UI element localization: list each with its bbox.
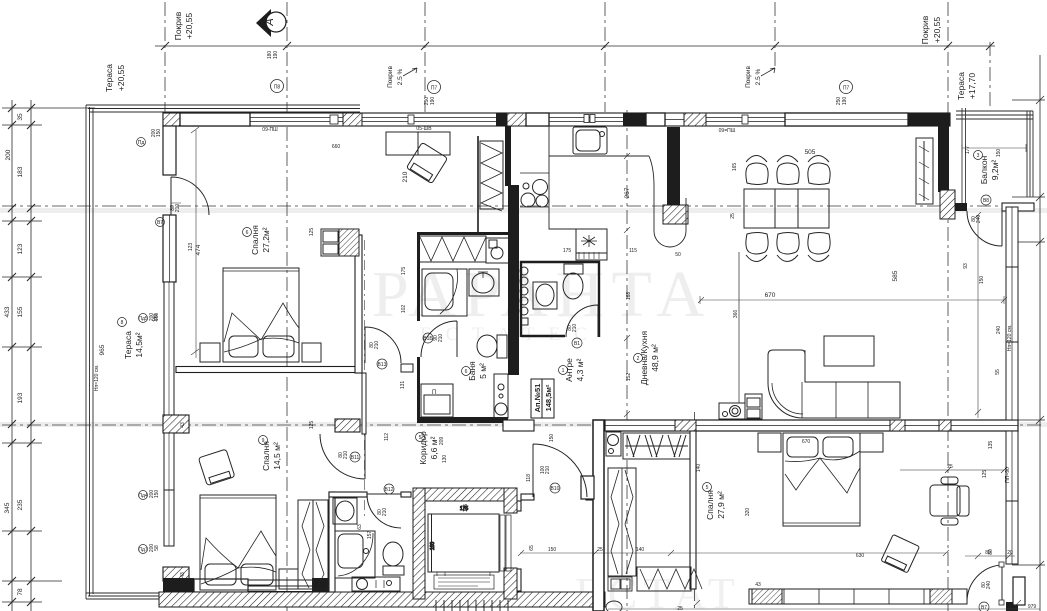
svg-text:210: 210 (572, 324, 578, 333)
svg-text:6,6 м²: 6,6 м² (429, 436, 439, 459)
svg-text:175: 175 (563, 248, 572, 254)
svg-text:190: 190 (430, 97, 436, 106)
svg-text:210: 210 (402, 171, 409, 182)
svg-text:Коридор: Коридор (418, 431, 428, 465)
svg-text:+20,55: +20,55 (184, 13, 194, 40)
svg-text:130: 130 (442, 455, 448, 464)
svg-text:5 м²: 5 м² (478, 363, 488, 379)
svg-text:43: 43 (755, 582, 761, 588)
svg-text:140: 140 (636, 547, 645, 553)
svg-text:Пд4: Пд4 (138, 493, 148, 499)
svg-text:Ап.№51: Ап.№51 (533, 384, 542, 413)
svg-text:+20,55: +20,55 (116, 65, 126, 92)
svg-text:25: 25 (597, 547, 603, 553)
svg-text:168: 168 (626, 292, 632, 301)
svg-text:177: 177 (965, 146, 971, 155)
svg-text:Антре: Антре (564, 358, 574, 382)
svg-text:20: 20 (1007, 550, 1013, 556)
svg-text:366: 366 (733, 310, 739, 319)
svg-text:П: П (432, 390, 436, 396)
svg-text:25: 25 (730, 213, 736, 219)
svg-text:200: 200 (5, 149, 12, 160)
svg-text:ПП=90: ПП=90 (1005, 467, 1011, 483)
svg-text:240: 240 (986, 581, 992, 590)
svg-text:65: 65 (529, 545, 535, 551)
svg-text:В10: В10 (551, 486, 560, 492)
svg-text:Покрив: Покрив (920, 15, 930, 44)
svg-text:180: 180 (430, 542, 436, 551)
svg-text:80: 80 (988, 549, 994, 555)
svg-text:Тераса: Тераса (956, 72, 966, 100)
svg-text:630: 630 (856, 553, 865, 559)
svg-text:14,5м²: 14,5м² (134, 332, 144, 357)
svg-text:63: 63 (357, 524, 363, 530)
svg-text:240: 240 (996, 326, 1002, 335)
svg-text:115: 115 (629, 248, 637, 254)
svg-text:148,5м²: 148,5м² (544, 384, 553, 411)
svg-text:2.5 %: 2.5 % (397, 68, 404, 85)
svg-text:157: 157 (367, 531, 373, 540)
svg-text:Нп=120 см.: Нп=120 см. (94, 365, 100, 391)
svg-text:660: 660 (332, 144, 341, 150)
svg-text:123: 123 (188, 243, 194, 252)
svg-text:25: 25 (677, 606, 683, 611)
svg-text:Покрив: Покрив (173, 11, 183, 40)
svg-text:27,9 м²: 27,9 м² (716, 491, 726, 519)
svg-text:190: 190 (273, 51, 279, 60)
svg-text:210: 210 (343, 451, 349, 460)
svg-text:210: 210 (545, 466, 551, 475)
svg-text:Нп=120 см.: Нп=120 см. (1007, 325, 1013, 351)
svg-text:150: 150 (996, 149, 1002, 158)
svg-text:670: 670 (765, 292, 776, 299)
svg-text:9,2м²: 9,2м² (990, 160, 1000, 181)
svg-text:Тераса: Тераса (123, 331, 133, 359)
svg-text:Балкон: Балкон (979, 155, 989, 184)
svg-text:Спалня: Спалня (250, 225, 260, 255)
svg-text:93: 93 (963, 263, 969, 269)
svg-text:Покрив: Покрив (745, 66, 752, 88)
svg-text:В7: В7 (981, 605, 987, 611)
svg-text:Тераса: Тераса (104, 64, 114, 92)
svg-text:210: 210 (438, 334, 444, 343)
svg-text:П7: П7 (431, 86, 438, 92)
svg-text:175: 175 (463, 504, 469, 513)
svg-text:118: 118 (526, 474, 532, 482)
svg-text:135: 135 (988, 441, 994, 450)
svg-text:152: 152 (626, 373, 632, 382)
svg-text:112: 112 (384, 433, 390, 441)
svg-text:320: 320 (745, 508, 751, 517)
svg-text:210: 210 (382, 508, 388, 517)
svg-text:48,9 м²: 48,9 м² (650, 344, 660, 372)
svg-text:Спалня: Спалня (705, 490, 715, 520)
svg-text:175: 175 (401, 267, 407, 276)
svg-text:05-ШВ: 05-ШВ (416, 126, 432, 132)
svg-text:150: 150 (154, 490, 160, 499)
svg-text:155: 155 (17, 306, 24, 317)
svg-text:965: 965 (99, 344, 106, 355)
svg-text:209: 209 (439, 437, 445, 446)
svg-text:505: 505 (805, 149, 816, 156)
svg-text:150: 150 (548, 547, 557, 553)
svg-text:14,5 м²: 14,5 м² (272, 442, 282, 470)
svg-text:50: 50 (675, 252, 681, 258)
svg-text:Пд7: Пд7 (138, 547, 148, 553)
svg-text:В1Б: В1Б (423, 336, 433, 342)
svg-text:5: 5 (706, 485, 709, 491)
svg-text:125: 125 (309, 421, 315, 430)
svg-text:27,2м²: 27,2м² (261, 227, 271, 252)
svg-text:123: 123 (17, 243, 24, 254)
svg-text:190: 190 (842, 97, 848, 106)
svg-text:6: 6 (246, 230, 249, 236)
svg-text:131: 131 (400, 381, 406, 390)
svg-text:165: 165 (732, 163, 738, 172)
svg-text:210: 210 (374, 341, 380, 350)
svg-text:А: А (264, 18, 276, 26)
svg-text:Спалня: Спалня (261, 441, 271, 471)
svg-text:4,3 м²: 4,3 м² (575, 358, 585, 381)
svg-text:2.5 %: 2.5 % (755, 68, 762, 85)
svg-text:240: 240 (976, 215, 982, 224)
svg-text:125: 125 (309, 228, 315, 237)
svg-text:43: 43 (180, 572, 186, 578)
svg-text:125: 125 (982, 470, 988, 479)
svg-text:09=ПШ: 09=ПШ (719, 128, 736, 134)
svg-text:150: 150 (156, 129, 162, 138)
svg-text:В11: В11 (351, 455, 360, 461)
svg-text:155: 155 (153, 314, 159, 323)
svg-text:55: 55 (995, 369, 1001, 375)
svg-text:35: 35 (17, 113, 24, 121)
svg-text:П8: П8 (274, 85, 281, 91)
svg-text:8: 8 (121, 320, 124, 326)
svg-text:78: 78 (17, 588, 24, 596)
svg-text:В1: В1 (574, 341, 580, 347)
svg-text:585: 585 (892, 270, 899, 281)
svg-text:09-ПШ: 09-ПШ (262, 127, 278, 133)
svg-text:140: 140 (696, 464, 702, 473)
svg-text:979: 979 (1028, 604, 1037, 610)
svg-text:Покрив: Покрив (387, 66, 394, 88)
svg-text:267: 267 (624, 187, 631, 198)
svg-text:150: 150 (979, 276, 985, 285)
svg-text:150: 150 (549, 434, 555, 443)
svg-text:433: 433 (4, 306, 11, 317)
svg-text:В7: В7 (157, 220, 163, 226)
svg-text:25: 25 (947, 464, 953, 470)
svg-text:В8: В8 (983, 198, 989, 204)
svg-text:58: 58 (154, 545, 160, 551)
svg-text:210: 210 (175, 204, 181, 213)
svg-text:345: 345 (4, 502, 11, 513)
svg-text:235: 235 (17, 499, 24, 510)
svg-text:Пд5: Пд5 (138, 316, 148, 322)
svg-text:474: 474 (195, 244, 202, 255)
svg-text:В13: В13 (378, 362, 387, 368)
svg-text:П7: П7 (843, 86, 850, 92)
svg-text:670: 670 (802, 439, 811, 445)
svg-text:Пд: Пд (138, 140, 145, 146)
svg-text:+17,70: +17,70 (967, 73, 977, 100)
svg-text:102: 102 (401, 305, 407, 314)
svg-text:43: 43 (180, 422, 186, 428)
svg-text:В12: В12 (385, 487, 394, 493)
svg-text:193: 193 (17, 392, 24, 403)
svg-text:Дневна/Кухня: Дневна/Кухня (639, 330, 649, 385)
svg-text:183: 183 (17, 166, 24, 177)
svg-text:+20,55: +20,55 (932, 17, 942, 44)
svg-text:Баня: Баня (467, 361, 477, 381)
